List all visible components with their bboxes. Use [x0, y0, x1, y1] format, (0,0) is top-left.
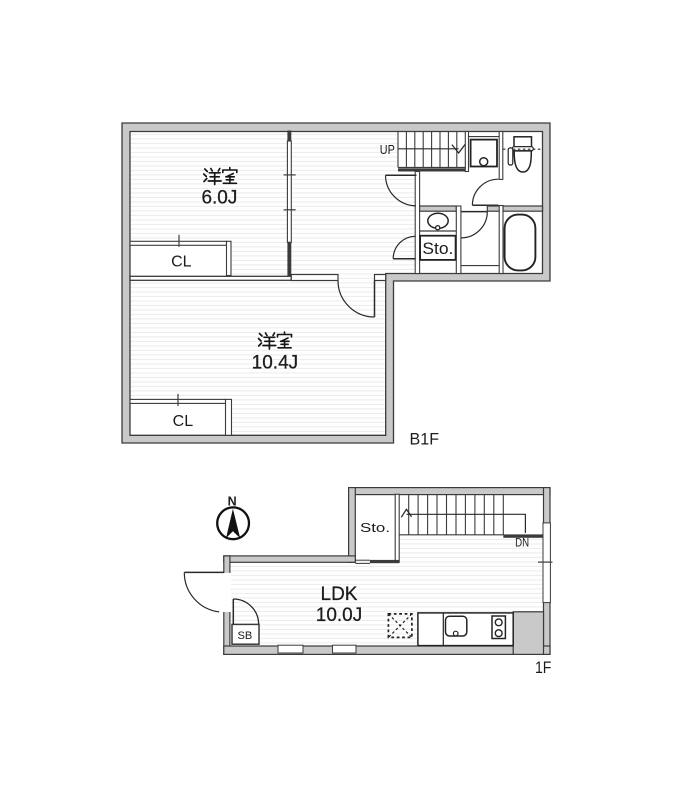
svg-text:10.4J: 10.4J — [252, 352, 298, 373]
svg-text:6.0J: 6.0J — [201, 188, 237, 209]
svg-text:SB: SB — [238, 630, 253, 642]
svg-text:Sto.: Sto. — [360, 520, 390, 535]
svg-text:CL: CL — [173, 413, 194, 430]
svg-text:1F: 1F — [535, 658, 552, 677]
svg-text:CL: CL — [171, 254, 192, 271]
svg-text:N: N — [228, 494, 237, 508]
svg-text:B1F: B1F — [410, 430, 440, 449]
svg-text:Sto.: Sto. — [422, 239, 453, 258]
svg-text:10.0J: 10.0J — [316, 605, 362, 626]
svg-text:DN: DN — [515, 537, 529, 549]
svg-text:LDK: LDK — [321, 584, 358, 605]
svg-text:UP: UP — [380, 142, 395, 157]
